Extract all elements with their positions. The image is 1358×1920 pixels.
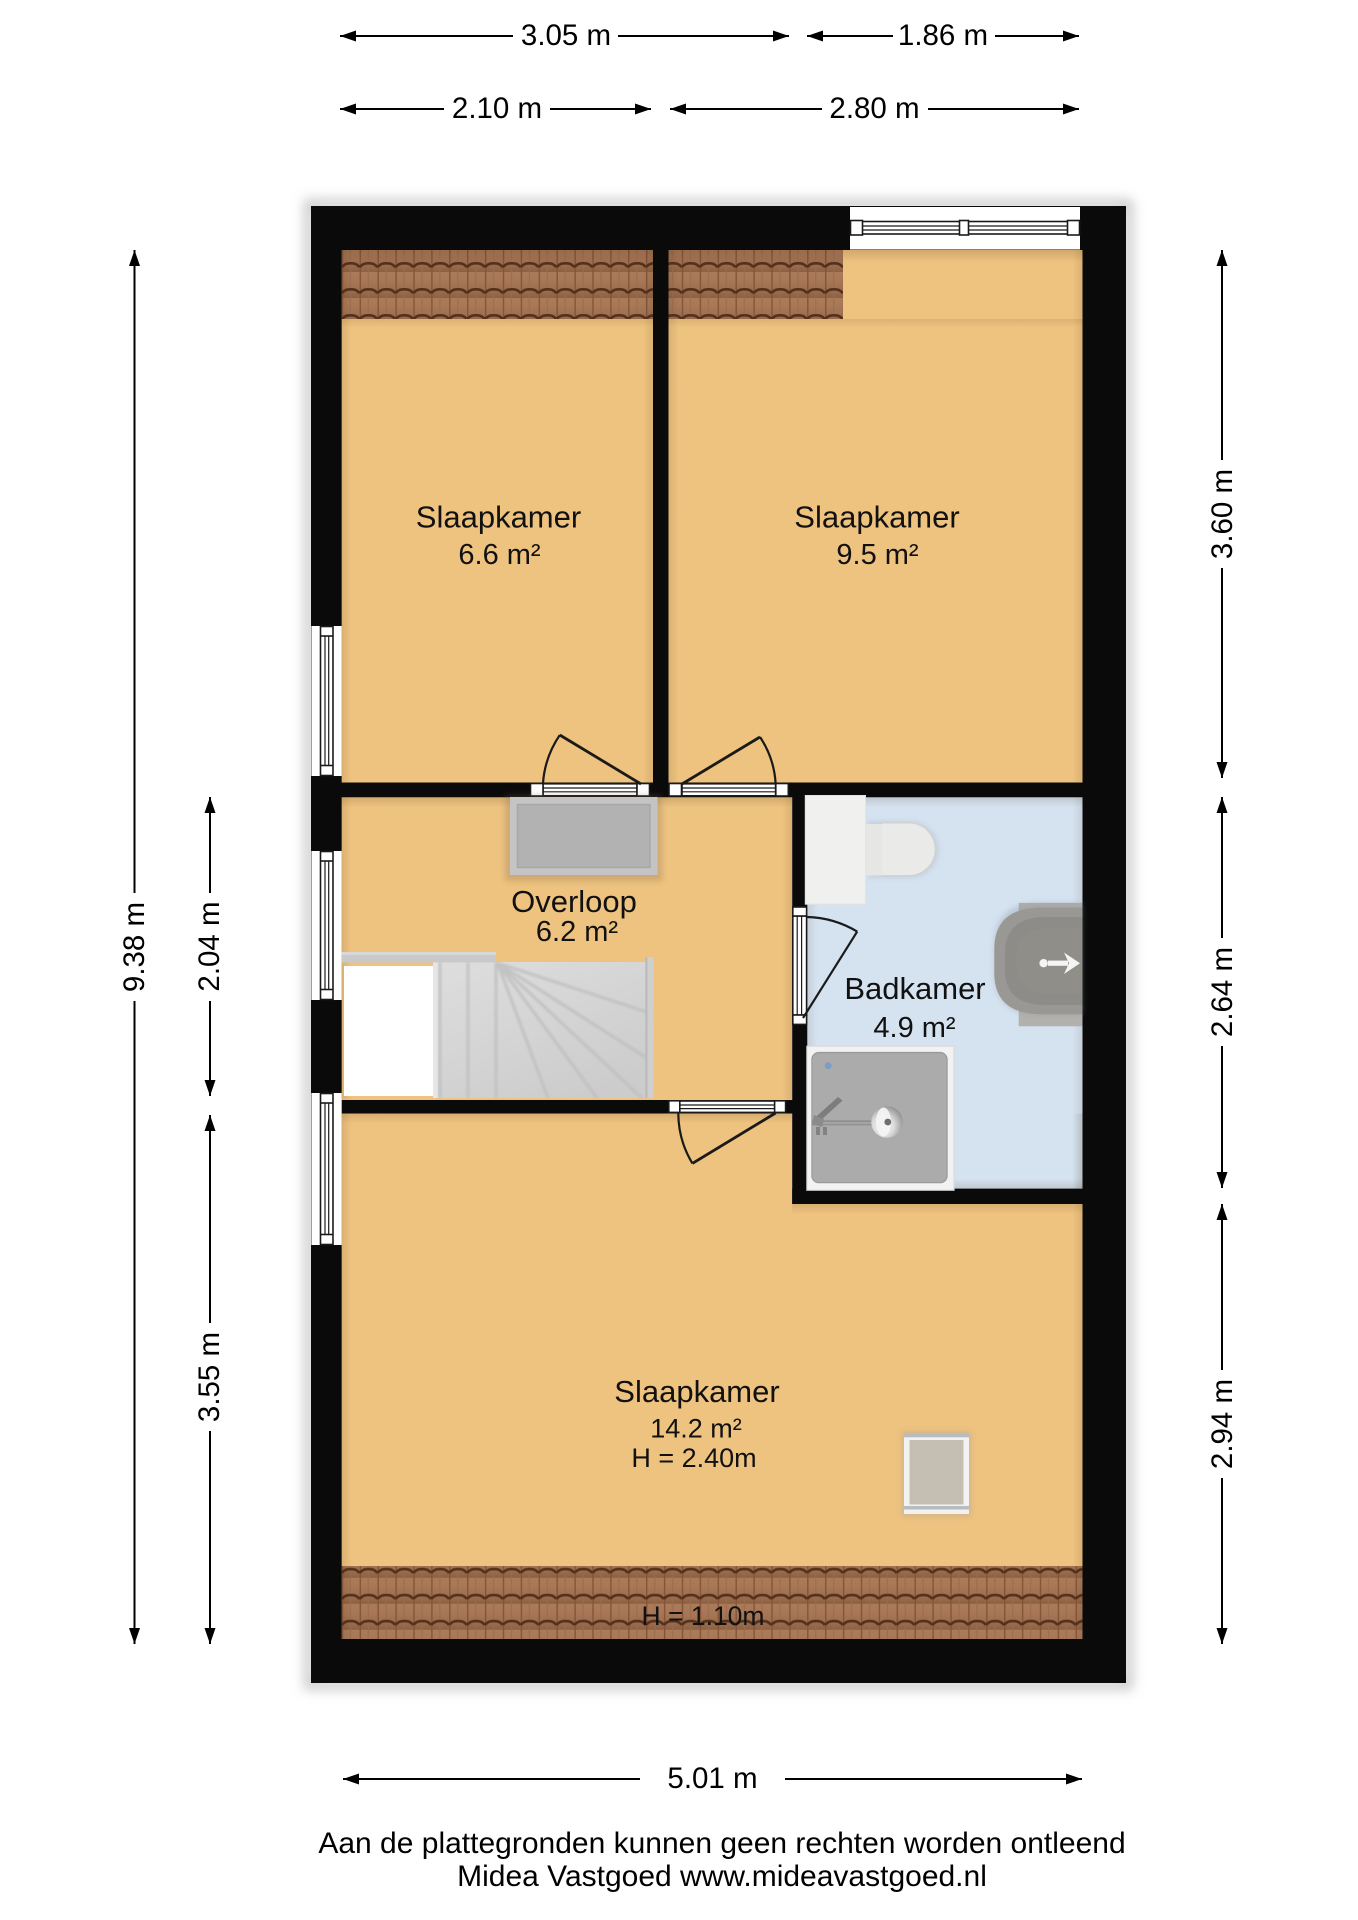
svg-text:9.5 m²: 9.5 m² bbox=[836, 539, 919, 571]
svg-text:14.2 m²: 14.2 m² bbox=[650, 1414, 742, 1444]
svg-text:2.94 m: 2.94 m bbox=[1206, 1379, 1239, 1469]
svg-text:6.2 m²: 6.2 m² bbox=[536, 916, 619, 948]
svg-text:Badkamer: Badkamer bbox=[844, 971, 985, 1006]
svg-text:5.01 m: 5.01 m bbox=[667, 1762, 757, 1795]
svg-text:H = 1.10m: H = 1.10m bbox=[642, 1601, 765, 1631]
svg-text:3.60 m: 3.60 m bbox=[1206, 469, 1239, 559]
svg-text:4.9 m²: 4.9 m² bbox=[873, 1012, 956, 1044]
svg-text:2.64 m: 2.64 m bbox=[1206, 947, 1239, 1037]
svg-text:6.6 m²: 6.6 m² bbox=[458, 539, 541, 571]
svg-text:Overloop: Overloop bbox=[511, 884, 637, 919]
svg-text:2.10 m: 2.10 m bbox=[452, 92, 542, 125]
svg-text:2.80 m: 2.80 m bbox=[829, 92, 919, 125]
svg-text:2.04 m: 2.04 m bbox=[193, 901, 226, 991]
svg-text:Aan de plattegronden kunnen ge: Aan de plattegronden kunnen geen rechten… bbox=[318, 1827, 1125, 1860]
svg-text:Slaapkamer: Slaapkamer bbox=[794, 500, 959, 535]
svg-text:Midea Vastgoed www.mideavastgo: Midea Vastgoed www.mideavastgoed.nl bbox=[457, 1860, 987, 1893]
svg-text:Slaapkamer: Slaapkamer bbox=[416, 500, 581, 535]
svg-text:3.55 m: 3.55 m bbox=[193, 1332, 226, 1422]
svg-text:1.86 m: 1.86 m bbox=[898, 19, 988, 52]
svg-text:3.05 m: 3.05 m bbox=[521, 19, 611, 52]
svg-text:Slaapkamer: Slaapkamer bbox=[614, 1374, 779, 1409]
svg-text:9.38 m: 9.38 m bbox=[118, 902, 151, 992]
svg-text:H = 2.40m: H = 2.40m bbox=[631, 1443, 756, 1473]
